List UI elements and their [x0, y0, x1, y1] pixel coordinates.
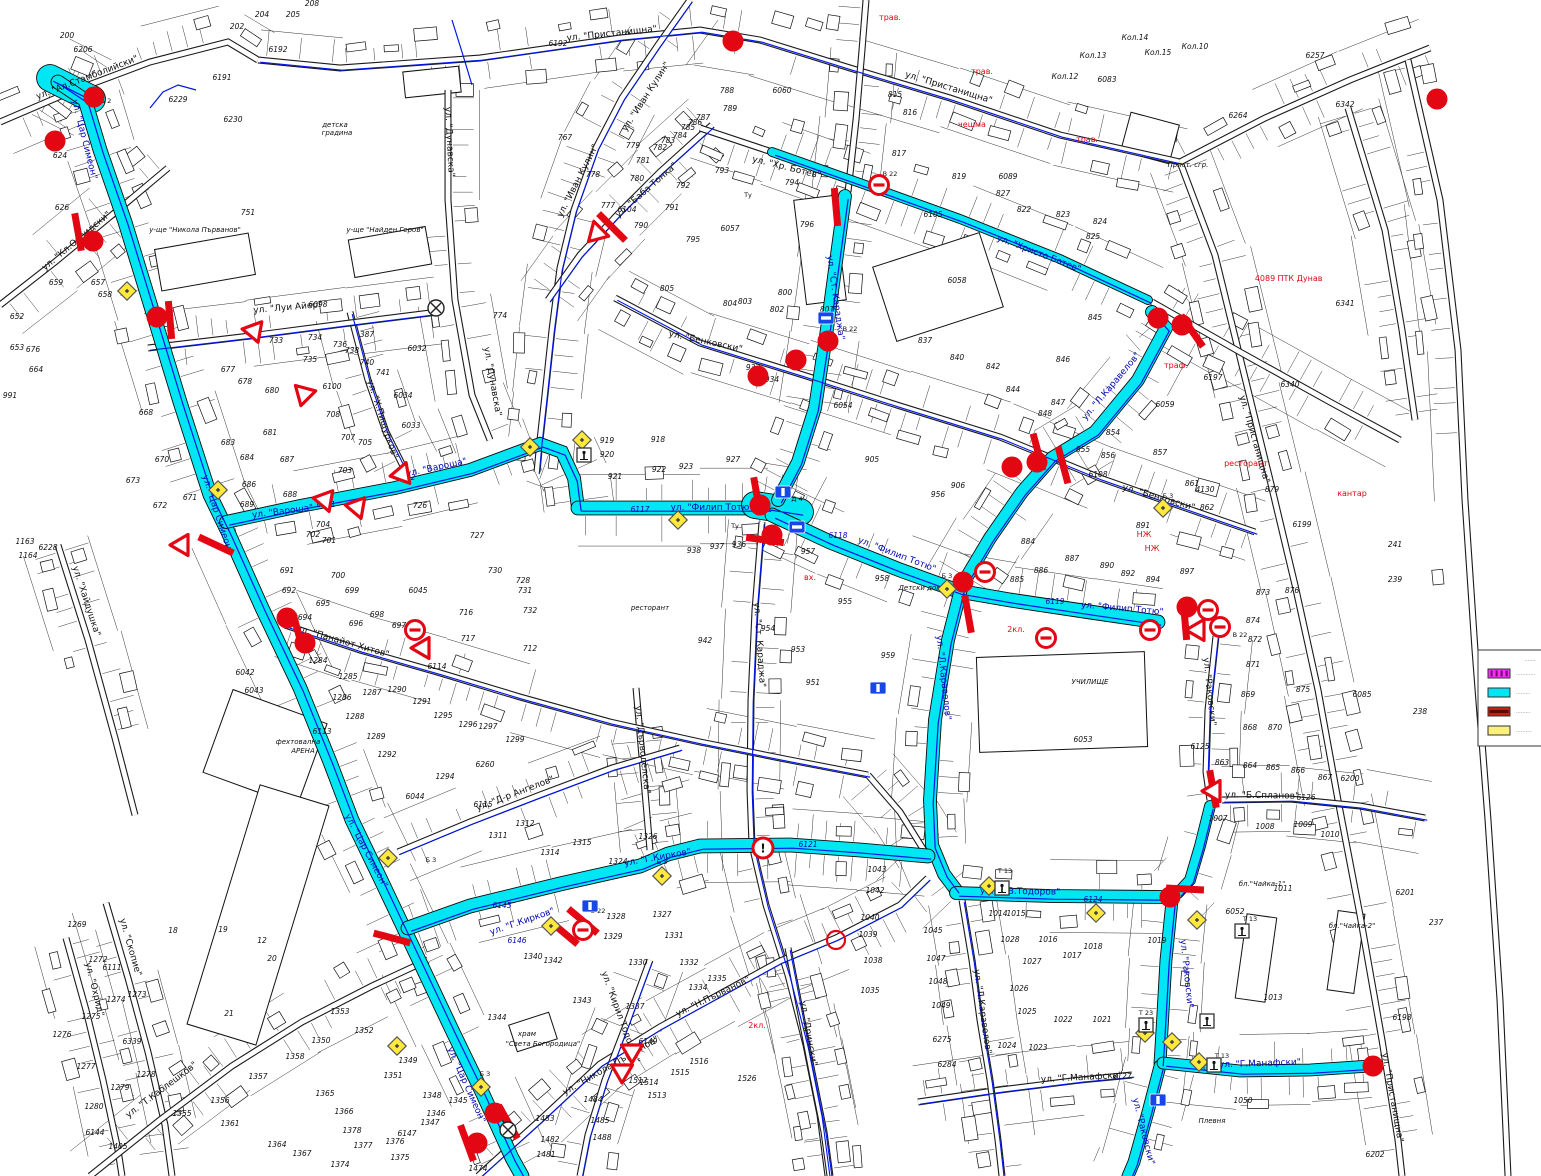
parcel-number: 1367	[292, 1149, 311, 1158]
building	[753, 126, 765, 136]
parcel-number: 796	[800, 220, 815, 229]
parcel-number: 1357	[248, 1072, 267, 1081]
legend-layer: ········································…	[1478, 650, 1541, 746]
sign-code-label: Б 3	[480, 1070, 491, 1078]
parcel-number: 1356	[210, 1096, 229, 1105]
parcel-number: 1008	[1255, 822, 1274, 831]
parcel-number: 4130	[1195, 485, 1214, 494]
parcel-number: 6111	[102, 963, 121, 972]
segment-id: 6145	[492, 901, 511, 910]
parcel-number: 6230	[223, 115, 242, 124]
parcel-number: 1343	[572, 996, 591, 1005]
poi-label: АРЕНА	[290, 747, 315, 755]
building	[1325, 418, 1351, 441]
building	[173, 1115, 193, 1135]
building	[117, 707, 131, 729]
info-sign	[789, 521, 805, 533]
building	[631, 279, 648, 294]
building	[363, 663, 388, 676]
parcel-number: 1375	[390, 1153, 409, 1162]
building	[1276, 597, 1291, 614]
building	[805, 18, 823, 31]
parcel-number: 1376	[385, 1137, 404, 1146]
parcel-number: 791	[665, 203, 679, 212]
parcel-number: 869	[1241, 690, 1256, 699]
building	[792, 1158, 805, 1171]
parcel-number: 959	[881, 651, 896, 660]
give-way-sign	[291, 385, 316, 408]
building	[120, 1048, 132, 1064]
parcel-number: 1049	[931, 1001, 950, 1010]
parcel-number: 923	[679, 462, 694, 471]
parcel-number: 6032	[407, 344, 426, 353]
building	[1432, 569, 1444, 585]
parcel-number: 1048	[928, 977, 947, 986]
parcel-number: 885	[1010, 575, 1025, 584]
legend: ········································…	[1478, 650, 1541, 746]
poi-label: Плевня	[1199, 1117, 1226, 1125]
building	[1234, 807, 1245, 821]
parcel-number: 6201	[1395, 888, 1414, 897]
red-poi-label: кантар	[1337, 489, 1367, 498]
parcel-number: 1349	[398, 1056, 417, 1065]
parcel-number: 951	[806, 678, 820, 687]
building	[447, 954, 462, 971]
parcel-number: 6199	[1292, 520, 1311, 529]
large-building	[155, 233, 256, 291]
building	[883, 370, 899, 386]
parcel-number: 1355	[172, 1109, 191, 1118]
building	[146, 979, 164, 1002]
building	[527, 370, 537, 384]
building	[742, 523, 760, 535]
poi-label: "Света Богородица"	[506, 1040, 581, 1048]
building	[751, 458, 767, 473]
parcel-number: 1014	[988, 909, 1007, 918]
poi-label: бл."Чайка-2"	[1329, 922, 1376, 930]
parcel-number: 6033	[401, 421, 420, 430]
parcel-number: 1352	[354, 1026, 373, 1035]
building	[579, 285, 594, 301]
parcel-number: 1039	[858, 930, 877, 939]
building	[465, 208, 478, 223]
red-poi-label: 4089	[1255, 274, 1275, 283]
building	[448, 499, 469, 510]
red-point-marker	[147, 307, 168, 328]
parcel-number: 802	[770, 305, 785, 314]
parcel-number: 1513	[647, 1091, 666, 1100]
parcel-number: 862	[1200, 503, 1215, 512]
legend-swatch	[1488, 688, 1510, 697]
parcel-number: 815	[888, 90, 903, 99]
parcel-number: 955	[838, 597, 853, 606]
building	[853, 1145, 863, 1167]
parcel-number: 874	[1246, 616, 1261, 625]
building	[787, 306, 800, 320]
parcel-number: 730	[488, 566, 503, 575]
red-poi-label: НЖ	[1145, 544, 1160, 553]
parcel-number: 6045	[408, 586, 427, 595]
large-building	[403, 66, 461, 98]
building	[521, 459, 535, 473]
parcel-number: 1292	[377, 750, 396, 759]
building	[558, 23, 571, 31]
parcel-number: 887	[1065, 554, 1080, 563]
red-point-marker	[750, 495, 771, 516]
building	[607, 1152, 619, 1170]
info-sign	[818, 312, 834, 324]
building	[1244, 494, 1257, 513]
parcel-number: 1275	[81, 1012, 100, 1021]
parcel-number: 892	[1121, 569, 1136, 578]
parcel-number: 1280	[84, 1102, 103, 1111]
parcel-number: 1327	[652, 910, 671, 919]
parcel-number: 886	[1034, 566, 1049, 575]
parcel-number: 731	[518, 586, 532, 595]
poi-label: УЧИЛИЩЕ	[1072, 678, 1109, 686]
building	[1278, 450, 1291, 470]
parcel-number: 905	[865, 455, 880, 464]
parcel-number: 6257	[1305, 51, 1324, 60]
building	[414, 27, 438, 41]
parcel-number: 918	[651, 435, 666, 444]
building	[1060, 915, 1078, 928]
parcel-number: 6089	[998, 172, 1017, 181]
building	[1267, 810, 1280, 819]
red-poi-label: траф.	[1164, 361, 1188, 370]
building	[778, 877, 789, 893]
building	[1353, 211, 1370, 231]
building	[654, 973, 667, 988]
parcel-number: 200	[60, 31, 75, 40]
parcel-number: 1311	[488, 831, 507, 840]
building	[615, 249, 632, 266]
parcel-number: 1038	[863, 956, 882, 965]
building	[833, 124, 848, 149]
parcel-number: 1342	[543, 956, 562, 965]
crossing-marker	[428, 300, 444, 316]
parcel-number: 1284	[308, 656, 327, 665]
street-country-road	[1408, 60, 1508, 1176]
priority-road-sign	[653, 867, 671, 885]
priority-road-sign	[1087, 904, 1105, 922]
street-name-label: ул. "Цар Симеон"	[342, 813, 389, 890]
building	[914, 164, 929, 175]
red-poi-label: чешма	[958, 120, 986, 129]
parcel-number: 205	[286, 10, 301, 19]
parcel-number: 6042	[235, 668, 254, 677]
building	[533, 224, 548, 241]
parcel-number: 867	[1318, 773, 1333, 782]
building	[452, 655, 473, 672]
red-poi-label: ПТК Дунав	[1278, 274, 1323, 283]
building	[64, 657, 74, 669]
parcel-number: 6127	[1112, 1072, 1131, 1081]
building	[423, 937, 439, 952]
parcel-number: 6228	[38, 543, 57, 552]
parcel-number: 872	[1248, 635, 1263, 644]
parcel-number: 795	[686, 235, 701, 244]
building	[968, 1058, 982, 1071]
map-canvas[interactable]: ул. "Ал.Стамболийски"ул. "Кл.Охридски"ул…	[0, 0, 1541, 1176]
parcel-number: 1526	[737, 1074, 756, 1083]
parcel-number: 1482	[540, 1135, 559, 1144]
parcel-number: 6085	[1352, 690, 1371, 699]
parcel-number: 624	[53, 151, 68, 160]
parcel-number: 938	[687, 546, 702, 555]
parcel-number: 804	[723, 299, 738, 308]
parcel-number: 936	[732, 540, 747, 549]
parcel-number: 845	[1088, 313, 1103, 322]
building	[592, 1018, 608, 1034]
red-point-marker	[84, 87, 105, 108]
building	[1344, 1082, 1368, 1093]
parcel-number: 1324	[608, 857, 627, 866]
parcel-number: 696	[349, 619, 364, 628]
building	[481, 704, 505, 722]
building	[1213, 188, 1229, 211]
building	[43, 588, 58, 611]
building	[1050, 1096, 1074, 1107]
parcel-number: 1294	[435, 772, 454, 781]
parcel-number: 1364	[267, 1140, 286, 1149]
building	[1189, 1041, 1197, 1056]
building	[1106, 240, 1131, 258]
sign-code-label: Т 13	[997, 867, 1012, 875]
poi-label: ресторант	[630, 604, 670, 612]
building	[732, 171, 754, 184]
no-entry-sign	[574, 921, 593, 940]
parcel-number: 774	[493, 311, 508, 320]
legend-label: ··········	[1516, 729, 1532, 735]
parcel-number: 1019	[1147, 936, 1166, 945]
building	[639, 336, 653, 347]
building	[1421, 295, 1438, 321]
building	[115, 328, 129, 344]
building	[152, 1021, 169, 1037]
segment-id: 6146	[507, 936, 526, 945]
parcel-number: 1514	[639, 1078, 658, 1087]
parcel-number: 716	[459, 608, 474, 617]
parcel-number: 6229	[168, 95, 187, 104]
building	[886, 64, 893, 76]
parcel-number: 873	[1256, 588, 1271, 597]
red-point-marker	[1363, 1056, 1384, 1077]
parcel-number: 1366	[334, 1107, 353, 1116]
building	[203, 1055, 219, 1071]
parcel-number: 21	[224, 1009, 234, 1018]
parcel-number: 1285	[338, 672, 357, 681]
parcel-number: 664	[29, 365, 44, 374]
building	[119, 671, 137, 693]
red-point-marker	[1172, 315, 1193, 336]
parcel-number: 1015	[1006, 909, 1025, 918]
parcel-number: 780	[630, 174, 645, 183]
parcel-number: 1018	[1083, 942, 1102, 951]
parcel-number: 1163	[15, 537, 34, 546]
parcel-number: 1016	[1038, 935, 1057, 944]
parcel-number: 1328	[606, 912, 625, 921]
large-building	[348, 227, 431, 278]
parcel-number: 767	[558, 133, 573, 142]
parcel-number: 1009	[1293, 820, 1312, 829]
building	[825, 574, 843, 589]
building	[1285, 671, 1294, 686]
building	[562, 413, 572, 427]
parcel-number: 1278	[136, 1070, 155, 1079]
poi-label: Прист. сгр.	[1168, 161, 1209, 169]
parcel-number: 6034	[393, 391, 412, 400]
parcel-number: 1346	[426, 1109, 445, 1118]
building	[961, 1116, 978, 1141]
building	[1139, 400, 1157, 419]
building	[1090, 160, 1109, 174]
building	[453, 993, 470, 1013]
sign-code-label: В 22	[843, 325, 858, 333]
parcel-number: 6275	[932, 1035, 951, 1044]
parcel-number: 727	[470, 531, 485, 540]
parcel-number: 824	[1093, 217, 1108, 226]
building	[1384, 370, 1396, 385]
parcel-number: 741	[376, 368, 390, 377]
parcel-number: 6044	[405, 792, 424, 801]
building	[445, 370, 456, 394]
no-entry-sign	[976, 563, 995, 582]
parcel-number: 817	[892, 149, 907, 158]
red-point-marker	[83, 231, 104, 252]
building	[339, 404, 355, 428]
parcel-number: 6115	[473, 800, 492, 809]
parcel-number: 699	[345, 586, 360, 595]
parcel-number: 1483	[535, 1114, 554, 1123]
building	[1372, 106, 1386, 124]
building	[1092, 1041, 1115, 1053]
parcel-number: 708	[326, 410, 341, 419]
crosswalk-sign	[1139, 1018, 1153, 1032]
sign-code-label: Ту	[743, 191, 752, 199]
building	[833, 91, 848, 111]
building	[197, 397, 217, 423]
building	[1279, 121, 1296, 138]
parcel-number: 1269	[67, 920, 86, 929]
segment-id: 6121	[798, 840, 817, 849]
building	[244, 627, 262, 647]
building	[1248, 322, 1262, 347]
building	[369, 787, 384, 801]
building	[826, 1012, 839, 1027]
building	[106, 109, 120, 128]
building	[576, 102, 588, 116]
parcel-number: 1335	[707, 974, 726, 983]
parcel-number: 1287	[362, 688, 381, 697]
building	[906, 731, 918, 746]
parcel-number: 6342	[1335, 100, 1354, 109]
parcel-number: 1347	[420, 1118, 439, 1127]
building	[710, 6, 726, 17]
parcel-number: 837	[918, 336, 933, 345]
parcel-number: 1474	[468, 1164, 487, 1173]
red-point-marker	[467, 1133, 488, 1154]
parcel-number: 202	[230, 22, 245, 31]
parcel-number: 241	[1388, 540, 1402, 549]
building	[589, 8, 607, 20]
building	[976, 1152, 991, 1168]
building	[757, 777, 781, 793]
red-point-marker	[818, 331, 839, 352]
building	[822, 500, 835, 514]
building	[71, 548, 87, 563]
building	[832, 904, 853, 919]
parcel-number: 707	[341, 433, 356, 442]
building	[1286, 704, 1302, 724]
parcel-number: 827	[996, 189, 1011, 198]
building	[836, 826, 851, 836]
building	[1008, 1054, 1018, 1067]
building	[899, 590, 914, 606]
building	[42, 989, 56, 1014]
parcel-number: 1358	[285, 1052, 304, 1061]
building	[676, 1032, 701, 1054]
building	[486, 20, 500, 31]
sign-code-label: Б 3	[942, 572, 953, 580]
building	[348, 527, 361, 538]
parcel-number: 840	[950, 353, 965, 362]
red-point-marker	[485, 1103, 506, 1124]
parcel-number: 6054	[833, 401, 852, 410]
street-name-label: ул. "Л.Каравелов"	[971, 969, 993, 1055]
parcel-number: 792	[676, 181, 691, 190]
parcel-number: 387	[360, 330, 375, 339]
parcel-number: 1348	[422, 1091, 441, 1100]
parcel-number: 787	[696, 113, 711, 122]
parcel-number: 6192	[268, 45, 287, 54]
parcel-number: 1040	[860, 913, 879, 922]
building	[1004, 80, 1024, 98]
sign-code-label: Ту	[730, 522, 739, 530]
building	[785, 1084, 796, 1099]
parcel-number: 953	[791, 645, 806, 654]
parcel-number: 1314	[540, 848, 559, 857]
parcel-number: 6191	[212, 73, 231, 82]
parcel-number: 6083	[1097, 75, 1116, 84]
parcel-number: 704	[316, 520, 331, 529]
parcel-number: 1277	[76, 1062, 95, 1071]
building	[699, 358, 723, 376]
building	[1185, 680, 1193, 698]
parcel-number: 689	[240, 500, 255, 509]
parcel-number: 12	[257, 936, 267, 945]
building	[1415, 331, 1423, 354]
parcel-number: 705	[358, 438, 373, 447]
parcel-number: Кол.15	[1145, 48, 1172, 57]
parcel-number: 864	[1243, 761, 1258, 770]
parcel-number: 1022	[1053, 1015, 1072, 1024]
building	[733, 765, 748, 779]
building	[439, 446, 453, 457]
red-point-marker	[786, 350, 807, 371]
legend-title: ·······	[1524, 658, 1536, 664]
building	[1117, 303, 1134, 318]
building	[595, 58, 616, 72]
parcel-number: 688	[283, 490, 298, 499]
building	[747, 329, 767, 345]
parcel-number: 670	[155, 455, 170, 464]
parcel-number: 652	[10, 312, 25, 321]
parcel-number: 789	[723, 104, 738, 113]
parcel-number: 1332	[679, 958, 698, 967]
building	[975, 930, 992, 955]
parcel-number: 6126	[1296, 793, 1315, 802]
